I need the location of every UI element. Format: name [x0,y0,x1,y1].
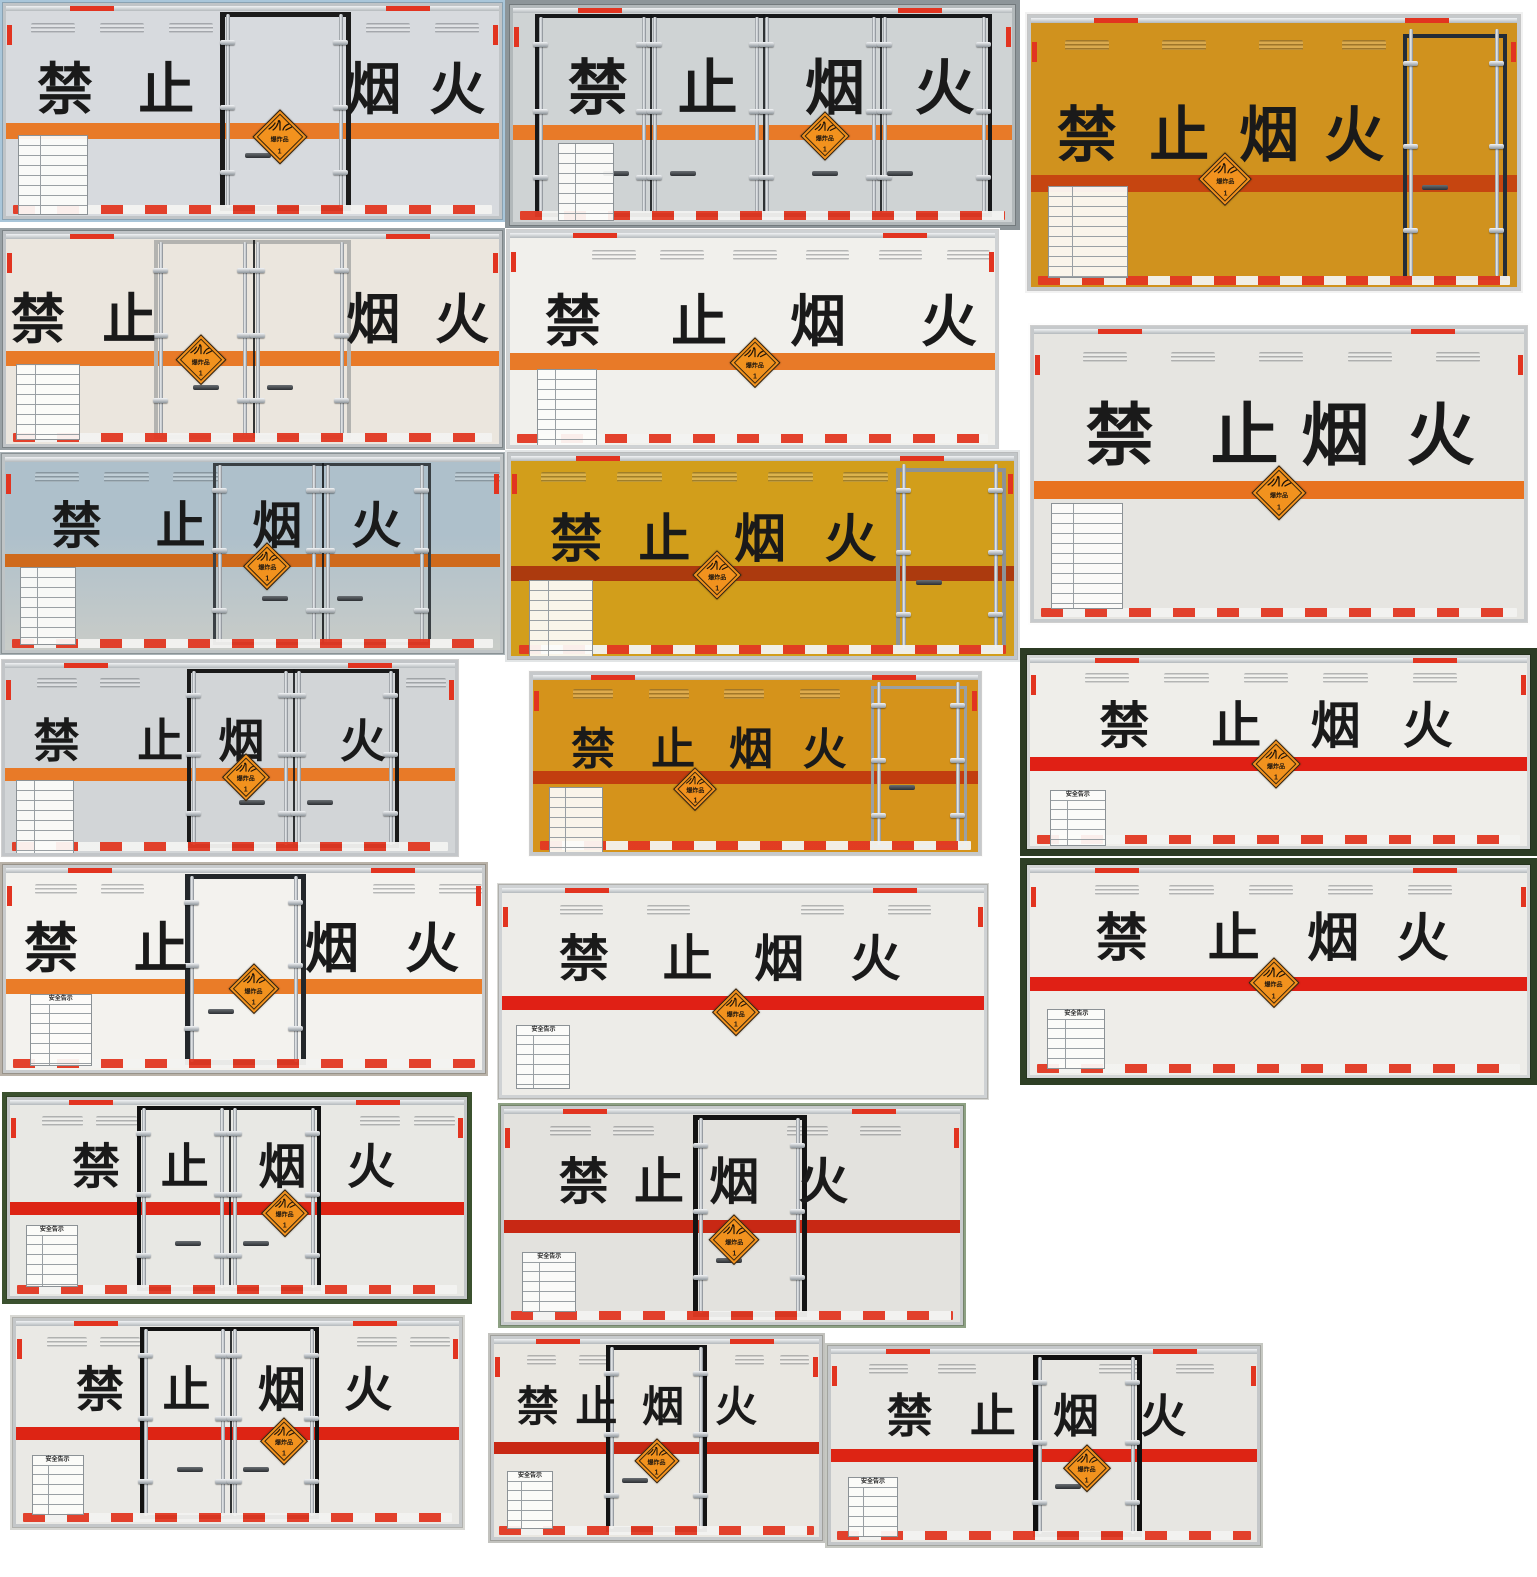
placard-label: 爆炸品 [647,1458,665,1467]
top-reflector [1411,329,1455,334]
explosive-placard: 爆炸品1 [222,753,270,801]
info-plate: 安全告示 [848,1477,898,1537]
cargo-box: 禁止烟火爆炸品1安全告示 [7,1097,467,1299]
vent-slots [541,472,586,482]
vent-slots [100,1337,140,1347]
truck-photo-7[interactable]: 禁止烟火爆炸品1 [0,452,505,655]
prohibition-char: 烟 [805,59,865,119]
side-reflector [1008,474,1013,494]
info-plate-rows [523,1262,575,1311]
prohibition-char: 禁 [72,1144,120,1192]
side-reflector [493,253,498,273]
info-plate: 安全告示 [1047,1009,1105,1069]
vent-slots [647,905,690,915]
top-reflector [1094,18,1138,23]
truck-photo-10[interactable]: 禁止烟火爆炸品1 [528,670,983,857]
top-reflector [563,1109,607,1114]
prohibition-char: 烟 [1301,402,1369,470]
vent-slots [1244,673,1289,683]
explosion-icon [706,558,729,571]
prohibition-char: 止 [102,293,156,347]
top-reflector [69,1100,113,1105]
vent-slots [47,1337,87,1347]
side-reflector [495,1357,500,1377]
explosion-icon [1262,965,1286,979]
explosive-placard: 爆炸品1 [712,988,760,1036]
door-hinge [153,268,168,273]
door-hinge [220,40,235,45]
placard-label: 爆炸品 [708,572,726,581]
door-hinge [896,488,911,493]
reflective-strip [540,841,972,850]
info-plate-rows [1049,187,1127,277]
explosive-placard: 爆炸品1 [708,1214,760,1266]
door-hinge [288,1026,303,1031]
top-reflector [536,1339,580,1344]
vent-slots [1259,40,1303,50]
prohibition-char: 烟 [305,922,359,976]
side-reflector [505,1128,510,1148]
side-reflector [1521,675,1526,695]
vent-slots [1095,885,1140,895]
side-reflector [954,1128,959,1148]
side-reflector [11,1118,16,1138]
hazard-class-number: 1 [252,1000,256,1007]
vent-slots [1413,673,1458,683]
side-reflector [972,691,977,711]
explosive-placard: 爆炸品1 [1251,465,1307,521]
door-hinge [220,170,235,175]
hazard-class-number: 1 [823,146,827,153]
prohibition-char: 烟 [258,1367,306,1415]
prohibition-char: 烟 [1307,913,1359,965]
prohibition-char: 禁 [1096,913,1148,965]
door-handle [262,596,288,601]
hazard-class-number: 1 [199,371,203,378]
top-reflector [900,456,944,461]
prohibition-char: 止 [663,934,713,984]
truck-photo-1[interactable]: 禁止烟火爆炸品1 [0,0,505,222]
prohibition-char: 止 [161,1144,209,1192]
cargo-box: 禁止烟火爆炸品1 [508,453,1017,659]
door-hinge [1489,144,1504,149]
hazard-class-number: 1 [1274,774,1278,781]
door-hinge [333,40,348,45]
door-hinge [1125,1500,1140,1505]
door-hinge [186,811,201,816]
hazard-class-number: 1 [283,1222,287,1229]
vent-slots [947,250,991,260]
cargo-box: 禁止烟火爆炸品1 [2,454,503,653]
info-plate [558,143,614,221]
side-reflector [7,886,12,906]
door-hinge [1032,1440,1047,1445]
explosive-placard: 爆炸品1 [800,111,850,161]
hazard-class-number: 1 [715,585,719,592]
vent-slots [435,23,479,33]
cargo-box: 禁止烟火爆炸品1安全告示 [1027,865,1530,1078]
vent-slots [692,472,737,482]
prohibition-char: 烟 [790,294,846,350]
vent-slots [560,905,603,915]
truck-photo-9[interactable]: 禁止烟火爆炸品1 [0,658,460,858]
hazard-class-number: 1 [244,786,248,793]
explosive-placard: 爆炸品1 [692,550,742,600]
info-plate [16,780,74,854]
cargo-box: 禁止烟火爆炸品1安全告示 [491,1336,822,1540]
top-reflector [578,8,622,13]
truck-photo-14[interactable]: 禁止烟火爆炸品1安全告示 [497,883,989,1100]
truck-photo-17[interactable]: 禁止烟火爆炸品1安全告示 [10,1315,465,1530]
vent-slots [1176,1364,1214,1374]
reflective-strip [23,1513,453,1522]
truck-photo-8[interactable]: 禁止烟火爆炸品1 [505,450,1020,662]
door-hinge [877,42,892,47]
vent-slots [579,1355,608,1365]
truck-photo-16[interactable]: 禁止烟火爆炸品1安全告示 [498,1103,966,1328]
explosive-placard: 爆炸品1 [1248,957,1300,1009]
door-hinge [1032,1500,1047,1505]
info-plate-rows [538,370,596,448]
prohibition-char: 火 [851,934,901,984]
hazard-class-number: 1 [693,798,697,805]
placard-label: 爆炸品 [725,1237,743,1246]
door-hinge [871,813,886,818]
prohibition-char: 烟 [1311,701,1361,751]
door-hinge [693,1432,708,1437]
vent-slots [724,689,764,699]
top-reflector [886,1349,930,1354]
vent-slots [735,1355,764,1365]
door-hinge [306,548,321,553]
door-hinge [306,608,321,613]
vent-slots [613,1126,654,1136]
prohibition-char: 禁 [571,728,615,772]
cargo-box: 禁止烟火爆炸品1 [510,5,1015,225]
side-reflector [6,680,11,700]
reflective-strip [17,1285,457,1294]
door-hinge [212,488,227,493]
door-hinge [647,42,662,47]
reflective-strip [1037,835,1519,844]
prohibition-char: 火 [429,62,485,118]
explosive-placard: 爆炸品1 [228,963,280,1015]
prohibition-char: 烟 [346,293,400,347]
info-plate-rows [550,788,602,856]
vent-slots [1065,40,1109,50]
explosion-icon [725,996,747,1008]
door-hinge [138,1353,153,1358]
info-plate: 安全告示 [30,994,92,1066]
vent-slots [843,472,888,482]
vent-slots [31,23,75,33]
top-reflector [591,675,635,680]
top-reflector [70,234,114,239]
info-plate-rows [27,1235,77,1286]
prohibition-char: 禁 [34,718,80,764]
top-reflector [1095,868,1139,873]
explosion-icon [235,761,257,773]
prohibition-char: 禁 [545,294,601,350]
prohibition-char: 烟 [345,62,401,118]
door-hinge [533,109,548,114]
vent-slots [1259,352,1303,362]
door-hinge [305,1253,320,1258]
prohibition-char: 止 [134,922,188,976]
vent-slots [410,1337,450,1347]
truck-photo-3[interactable]: 禁止烟火爆炸品1 [1025,12,1523,293]
info-plate-rows [530,581,592,657]
cargo-box: 禁止烟火爆炸品1 [3,231,502,447]
top-reflector [872,675,916,680]
cargo-box: 禁止烟火爆炸品1安全告示 [501,1106,963,1325]
prohibition-char: 烟 [258,1144,306,1192]
door-hinge [334,398,349,403]
truck-photo-6[interactable]: 禁止烟火爆炸品1 [1028,323,1530,625]
vent-slots [1164,673,1209,683]
cargo-box: 禁止烟火爆炸品1安全告示 [1027,655,1530,849]
prohibition-char: 火 [1407,402,1475,470]
door-hinge [877,109,892,114]
door-handle [916,580,942,585]
hazard-class-number: 1 [265,575,269,582]
reflective-strip [1037,1064,1519,1073]
top-reflector [1413,868,1457,873]
prohibition-char: 火 [1140,1393,1186,1439]
placard-label: 爆炸品 [271,134,289,143]
door-hinge [414,548,429,553]
placard-label: 爆炸品 [275,1438,293,1447]
vent-slots [357,1337,397,1347]
top-reflector [576,456,620,461]
placard-label: 爆炸品 [1265,980,1283,989]
prohibition-char: 禁 [52,501,102,551]
vent-slots [35,472,80,482]
top-reflector [1098,329,1142,334]
truck-photo-2[interactable]: 禁止烟火爆炸品1 [505,0,1020,230]
side-reflector [503,907,508,927]
door-hinge [334,268,349,273]
door-hinge [896,550,911,555]
cargo-box: 禁止烟火爆炸品1安全告示 [499,885,987,1098]
side-reflector [449,680,454,700]
truck-photo-5[interactable]: 禁止烟火爆炸品1 [505,228,1000,450]
info-plate [18,135,88,215]
top-reflector [1413,658,1457,663]
vent-slots [406,678,447,688]
truck-photo-18[interactable]: 禁止烟火爆炸品1安全告示 [488,1333,825,1543]
top-reflector [386,234,430,239]
door-hinge [227,1253,242,1258]
door-hinge [693,1143,708,1148]
hazard-class-number: 1 [1085,1477,1089,1484]
door-hinge [871,703,886,708]
explosion-icon [685,774,705,785]
door-hinge [237,333,252,338]
vent-slots [1408,885,1453,895]
door-hinge [976,42,991,47]
vent-slots [660,250,704,260]
hazard-class-number: 1 [1223,190,1227,197]
side-reflector [476,886,481,906]
vent-slots [888,905,931,915]
door-hinge [227,1416,242,1421]
vent-slots [1348,352,1392,362]
door-hinge [647,109,662,114]
side-reflector [7,253,12,273]
door-hinge [333,170,348,175]
vent-slots [360,1116,401,1126]
door-hinge [212,608,227,613]
placard-label: 爆炸品 [746,360,764,369]
door-hinge [153,398,168,403]
vent-slots [780,1355,809,1365]
side-reflector [1521,887,1526,907]
prohibition-char: 火 [921,294,977,350]
prohibition-char: 禁 [11,293,65,347]
explosion-icon [273,1424,295,1436]
side-reflector [813,1357,818,1377]
prohibition-char: 火 [825,514,877,566]
placard-label: 爆炸品 [276,1210,294,1219]
cargo-box: 禁止烟火爆炸品1 [530,672,981,855]
vent-slots [550,1126,591,1136]
explosive-placard: 爆炸品1 [261,1189,309,1237]
truck-photo-4[interactable]: 禁止烟火爆炸品1 [0,228,505,450]
prohibition-char: 火 [802,728,846,772]
vent-slots [96,1116,137,1126]
door-hinge [1403,228,1418,233]
door-handle [1422,185,1448,190]
info-plate-rows [17,781,73,853]
prohibition-char: 火 [405,922,459,976]
top-reflector [730,1339,774,1344]
prohibition-char: 止 [651,728,695,772]
info-plate-rows [19,136,87,214]
side-reflector [511,252,516,272]
prohibition-char: 禁 [1086,402,1154,470]
truck-photo-11[interactable]: 禁止烟火爆炸品1安全告示 [1020,648,1537,856]
door-handle [175,1241,201,1246]
placard-label: 爆炸品 [245,986,263,995]
door-hinge [186,752,201,757]
door-hinge [184,900,199,905]
door-hinge [320,488,335,493]
vent-slots [1323,673,1368,683]
truck-photo-15[interactable]: 禁止烟火爆炸品1安全告示 [2,1092,472,1304]
vent-slots [806,250,850,260]
vent-slots [768,472,813,482]
side-reflector [832,1366,837,1386]
explosion-icon [1266,474,1292,489]
vent-slots [649,689,689,699]
top-reflector [898,8,942,13]
top-reflector [348,663,392,668]
explosive-placard: 爆炸品1 [175,334,227,386]
prohibition-char: 止 [638,514,690,566]
side-reflector [453,1339,458,1359]
prohibition-char: 火 [915,59,975,119]
door-hinge [383,811,398,816]
top-reflector [1405,18,1449,23]
prohibition-char: 火 [344,1367,392,1415]
door-handle [267,385,293,390]
info-plate-rows [31,1004,91,1065]
cargo-box: 禁止烟火爆炸品1安全告示 [3,865,485,1073]
door-hinge [759,42,774,47]
cargo-box: 禁止烟火爆炸品1 [1031,326,1527,622]
door-hinge [1125,1440,1140,1445]
info-plate-rows [1052,504,1122,608]
vent-slots [1162,40,1206,50]
top-reflector [852,1109,896,1114]
vent-slots [800,689,840,699]
hazard-class-number: 1 [278,149,282,156]
top-reflector [883,233,927,238]
prohibition-char: 禁 [550,514,602,566]
truck-photo-19[interactable]: 禁止烟火爆炸品1安全告示 [825,1343,1263,1548]
explosion-icon [722,1222,746,1236]
explosive-placard: 爆炸品1 [1251,739,1301,789]
explosion-icon [646,1445,667,1457]
vent-slots [1169,885,1214,895]
placard-label: 爆炸品 [1078,1465,1096,1474]
prohibition-char: 止 [137,718,183,764]
door-hinge [291,811,306,816]
door-hinge [896,612,911,617]
vent-slots [42,1116,83,1126]
side-reflector [1031,887,1036,907]
hazard-class-number: 1 [732,1251,736,1258]
info-plate: 安全告示 [507,1471,553,1529]
hazard-class-number: 1 [282,1450,286,1457]
explosive-placard: 爆炸品1 [673,767,717,811]
door-hinge [976,109,991,114]
explosive-placard: 爆炸品1 [634,1438,680,1484]
cargo-door [896,468,1007,651]
info-plate [1048,186,1128,278]
door-hinge [976,175,991,180]
explosive-placard: 爆炸品1 [252,109,308,165]
door-hinge [227,1192,242,1197]
reflective-strip [12,842,449,851]
door-hinge [138,1416,153,1421]
door-hinge [950,758,965,763]
door-handle [889,785,915,790]
door-hinge [291,693,306,698]
top-reflector [74,1321,118,1326]
reflective-strip [1041,608,1516,617]
vent-slots [169,23,213,33]
door-hinge [790,1143,805,1148]
door-hinge [693,1371,708,1376]
truck-photo-12[interactable]: 禁止烟火爆炸品1安全告示 [1020,858,1537,1085]
door-hinge [250,268,265,273]
prohibition-char: 禁 [517,1386,559,1428]
vent-slots [573,689,613,699]
prohibition-char: 止 [575,1386,617,1428]
door-hinge [1125,1380,1140,1385]
side-reflector [493,25,498,45]
door-hinge [988,612,1003,617]
explosion-icon [1076,1451,1098,1463]
vent-slots [35,884,78,894]
reflective-strip [12,639,492,648]
door-hinge [604,1432,619,1437]
reflective-strip [837,1531,1250,1540]
door-hinge [693,1209,708,1214]
truck-photo-13[interactable]: 禁止烟火爆炸品1安全告示 [0,862,488,1076]
